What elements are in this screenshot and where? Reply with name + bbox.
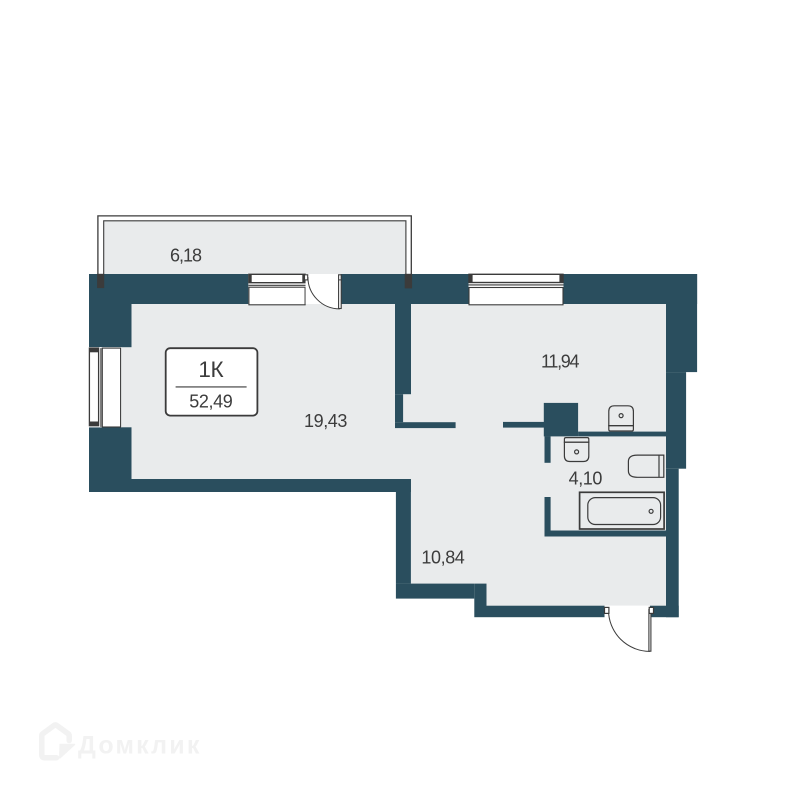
- svg-text:19,43: 19,43: [304, 411, 347, 431]
- svg-text:6,18: 6,18: [170, 245, 202, 265]
- svg-text:11,94: 11,94: [541, 352, 579, 372]
- svg-text:52,49: 52,49: [189, 391, 232, 411]
- svg-text:1К: 1К: [198, 357, 223, 382]
- svg-text:10,84: 10,84: [421, 548, 464, 568]
- svg-text:Домклик: Домклик: [78, 732, 202, 760]
- svg-text:4,10: 4,10: [569, 469, 603, 489]
